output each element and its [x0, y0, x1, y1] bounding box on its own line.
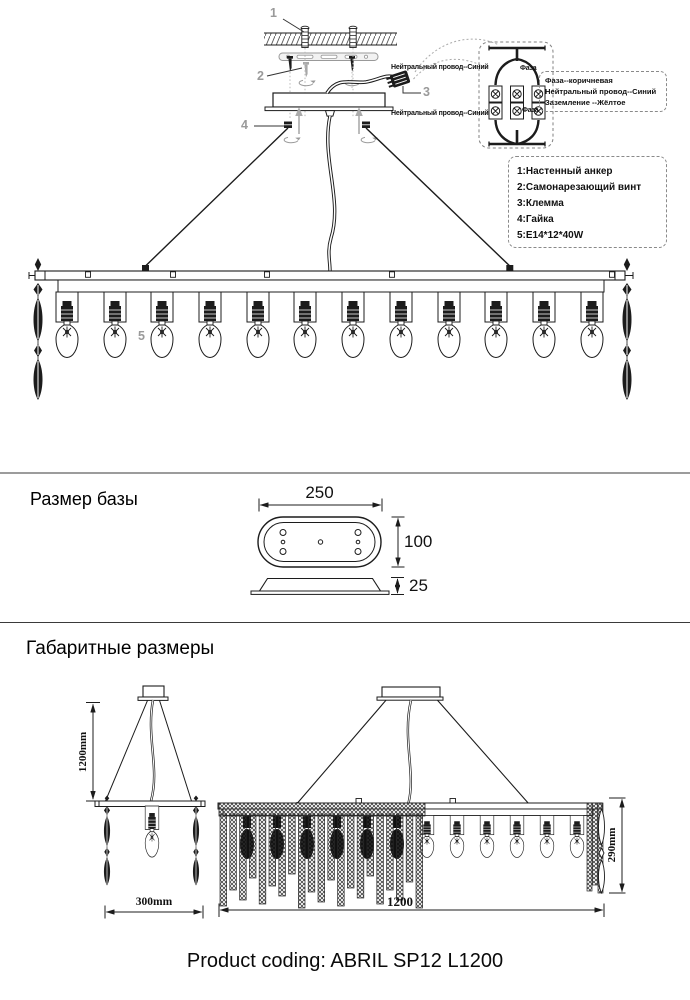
crystal-drop-right: [623, 283, 632, 400]
callout-5: 5: [138, 329, 145, 343]
crystal-drop-left: [34, 283, 43, 400]
dim-label-250: 250: [297, 483, 342, 503]
callout-3: 3: [423, 85, 430, 99]
dim-100: [392, 517, 405, 567]
part-item-4: 4:Гайка: [517, 212, 666, 228]
legend-ground: Заземление --Жёлтое: [545, 97, 662, 108]
base-top-view: [258, 517, 381, 567]
overall-size-title: Габаритные размеры: [26, 638, 214, 660]
dim-label-300mm: 300mm: [128, 896, 180, 908]
front-view: [218, 687, 605, 908]
wire-label-neutral-top: Нейтральный провод--Синий: [391, 64, 476, 71]
wire-label-phase-bottom: Фаза: [522, 107, 538, 114]
dim-label-25: 25: [409, 576, 428, 596]
terminal-connector: [386, 70, 411, 89]
central-cord: [328, 116, 335, 271]
wire-diagram: [414, 39, 554, 148]
instruction-sheet: 1 2 3 4 5 Нейтральный провод--Синий Фаза…: [0, 0, 690, 1000]
callout-2: 2: [257, 69, 264, 83]
dim-label-290mm: 290mm: [606, 821, 618, 869]
bulb-row: [56, 292, 603, 358]
mounting-strap: [279, 53, 378, 61]
power-cord: [327, 76, 394, 93]
wire-label-phase-top: Фаза: [520, 65, 536, 72]
dim-label-1200mm: 1200mm: [77, 728, 89, 776]
part-item-5: 5:E14*12*40W: [517, 228, 666, 244]
product-coding: Product coding: ABRIL SP12 L1200: [0, 950, 690, 973]
base-size-title: Размер базы: [30, 489, 138, 510]
parts-list: 1:Настенный анкер 2:Самонарезающий винт …: [508, 156, 667, 248]
part-item-2: 2:Самонарезающий винт: [517, 180, 666, 196]
legend-phase: Фаза--коричневая: [545, 75, 662, 86]
callout-4: 4: [241, 118, 248, 132]
dim-25: [391, 578, 404, 595]
part-item-3: 3:Клемма: [517, 196, 666, 212]
legend-neutral: Нейтральный провод--Синий: [545, 86, 662, 97]
part-item-1: 1:Настенный анкер: [517, 164, 666, 180]
ceiling-hatch: [264, 33, 397, 45]
wire-color-legend: Фаза--коричневая Нейтральный провод--Син…: [539, 71, 667, 112]
dim-label-1200: 1200: [376, 894, 424, 910]
wire-label-neutral-bottom: Нейтральный провод--Синий: [391, 110, 476, 117]
callout-1: 1: [270, 6, 277, 20]
canopy: [265, 93, 393, 116]
base-side-view: [251, 579, 389, 595]
dim-label-100: 100: [404, 532, 432, 552]
side-view: [95, 686, 205, 886]
